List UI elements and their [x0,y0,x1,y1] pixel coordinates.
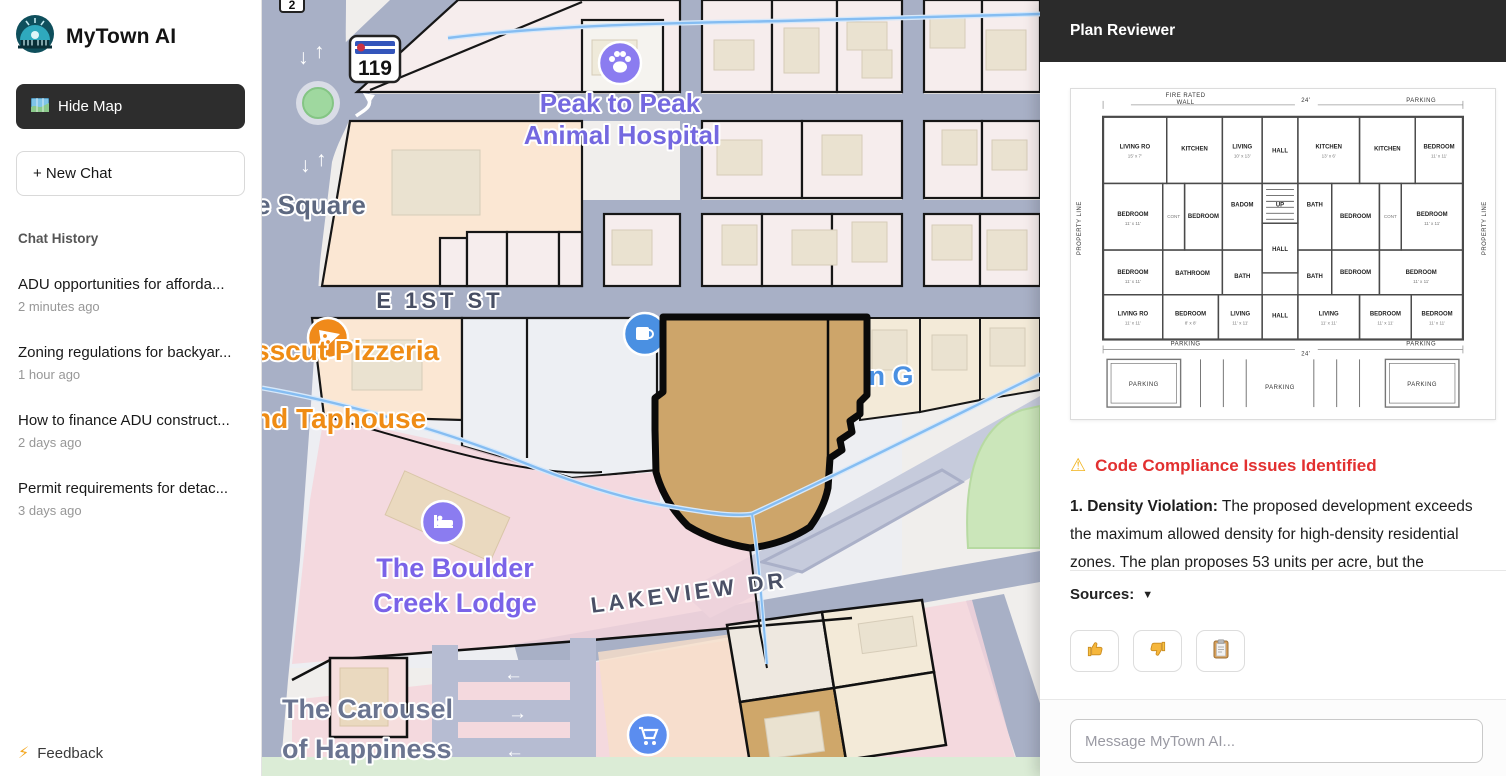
svg-text:15' x 7': 15' x 7' [1128,154,1142,159]
svg-text:10' x 13': 10' x 13' [1234,154,1251,159]
paw-icon[interactable] [599,42,641,84]
svg-text:↑: ↑ [316,148,327,171]
label-square: e Square [262,190,366,220]
svg-text:11' x 11': 11' x 11' [1413,279,1429,284]
label-carousel-line2: of Happiness [282,734,452,764]
issue-paragraph: 1. Density Violation: The proposed devel… [1070,493,1485,570]
chat-history-item[interactable]: ADU opportunities for afforda... 2 minut… [18,275,247,314]
svg-text:CONT: CONT [1384,214,1397,219]
svg-text:8' x 8': 8' x 8' [1185,321,1197,326]
chat-timestamp: 1 hour ago [18,367,247,382]
panel-body: FIRE RATED WALL 24' PARKING PARKING 24' … [1040,62,1506,699]
new-chat-button[interactable]: + New Chat [16,151,245,196]
chat-title: Zoning regulations for backyar... [18,343,247,362]
lightning-icon: ⚡ [18,743,29,763]
svg-text:↓: ↓ [298,46,309,69]
brand: MyTown AI [0,0,261,60]
mytown-logo-icon [14,13,56,60]
svg-text:11' x 11': 11' x 11' [1424,221,1440,226]
issues-heading-text: Code Compliance Issues Identified [1095,456,1377,476]
thumbs-down-button[interactable] [1133,630,1182,672]
svg-text:BEDROOM: BEDROOM [1188,214,1219,220]
chat-title: ADU opportunities for afforda... [18,275,247,294]
svg-text:2: 2 [289,0,296,12]
sidebar: MyTown AI Hide Map + New Chat Chat Histo… [0,0,262,776]
sources-label: Sources: [1070,586,1134,603]
warning-icon: ⚠ [1070,455,1086,476]
chat-history-heading: Chat History [18,231,261,246]
bed-icon[interactable] [422,501,464,543]
issues-heading: ⚠ Code Compliance Issues Identified [1070,455,1489,476]
thumbs-up-icon [1085,639,1105,664]
svg-text:LIVING RO: LIVING RO [1120,145,1151,151]
svg-text:119: 119 [358,57,392,80]
label-lodge-line2: Creek Lodge [373,588,537,618]
divider [1070,570,1506,571]
feedback-button[interactable]: ⚡ Feedback [18,743,103,763]
svg-text:BEDROOM: BEDROOM [1406,270,1437,276]
chat-timestamp: 3 days ago [18,503,247,518]
svg-text:PROPERTY LINE: PROPERTY LINE [1482,201,1488,255]
svg-text:24': 24' [1301,98,1310,104]
svg-text:CONT: CONT [1167,214,1180,219]
svg-text:KITCHEN: KITCHEN [1315,145,1341,151]
svg-text:LIVING: LIVING [1230,312,1250,318]
svg-text:11' x 11': 11' x 11' [1232,321,1248,326]
svg-text:←: ← [505,741,524,762]
svg-text:24': 24' [1301,351,1310,357]
chat-title: How to finance ADU construct... [18,411,247,430]
svg-text:BEDROOM: BEDROOM [1117,212,1148,218]
cart-icon[interactable] [628,715,668,755]
new-chat-label: + New Chat [33,165,112,182]
hide-map-button[interactable]: Hide Map [16,84,245,129]
brand-name: MyTown AI [66,25,176,49]
copy-button[interactable] [1196,630,1245,672]
sources-toggle[interactable]: Sources: ▼ [1070,586,1489,603]
composer [1040,699,1506,776]
chat-history-item[interactable]: Zoning regulations for backyar... 1 hour… [18,343,247,382]
svg-text:BATH: BATH [1307,202,1323,208]
clipboard-icon [1212,639,1230,664]
chat-title: Permit requirements for detac... [18,479,247,498]
svg-text:11' x 11': 11' x 11' [1125,221,1141,226]
svg-text:KITCHEN: KITCHEN [1181,147,1207,153]
svg-text:11' x 11': 11' x 11' [1125,321,1141,326]
svg-text:PROPERTY LINE: PROPERTY LINE [1077,201,1083,255]
app-window: MyTown AI Hide Map + New Chat Chat Histo… [0,0,1506,776]
message-input[interactable] [1070,719,1483,763]
floorplan-image[interactable]: FIRE RATED WALL 24' PARKING PARKING 24' … [1070,88,1496,420]
svg-text:BEDROOM: BEDROOM [1340,270,1371,276]
svg-text:↓: ↓ [300,154,311,177]
svg-text:KITCHEN: KITCHEN [1374,147,1400,153]
label-e-1st-st: E 1ST ST [376,288,503,313]
thumbs-up-button[interactable] [1070,630,1119,672]
svg-text:BATHROOM: BATHROOM [1175,271,1210,277]
svg-text:PARKING: PARKING [1406,98,1436,104]
label-peak-to-peak: Peak to Peak [540,88,701,118]
svg-text:BATH: BATH [1307,274,1323,280]
thumbs-down-icon [1148,639,1168,664]
message-actions [1070,630,1489,672]
svg-text:LIVING: LIVING [1232,145,1252,151]
svg-text:13' x 6': 13' x 6' [1322,154,1336,159]
roundabout [284,69,352,137]
svg-text:PARKING: PARKING [1265,385,1295,391]
label-animal-hospital: Animal Hospital [524,120,720,150]
chat-timestamp: 2 days ago [18,435,247,450]
svg-text:PARKING: PARKING [1171,341,1201,347]
route-shield-119: 119 [350,36,400,82]
label-carousel-line1: The Carousel [282,694,453,724]
svg-text:PARKING: PARKING [1129,382,1159,388]
route-shield-partial: 2 [280,0,304,12]
svg-text:PARKING: PARKING [1407,382,1437,388]
svg-text:BEDROOM: BEDROOM [1117,270,1148,276]
svg-text:11' x 11': 11' x 11' [1377,321,1393,326]
chevron-down-icon: ▼ [1142,589,1153,601]
svg-text:11' x 11': 11' x 11' [1321,321,1337,326]
hide-map-label: Hide Map [58,98,122,115]
svg-text:PARKING: PARKING [1406,341,1436,347]
svg-text:↑: ↑ [314,40,325,63]
svg-text:BEDROOM: BEDROOM [1175,312,1206,318]
panel-title: Plan Reviewer [1070,22,1175,40]
svg-text:LIVING RO: LIVING RO [1118,312,1149,318]
svg-text:WALL: WALL [1177,100,1195,106]
chat-timestamp: 2 minutes ago [18,299,247,314]
chat-history-item[interactable]: How to finance ADU construct... 2 days a… [18,411,247,450]
map-icon [31,98,49,116]
svg-text:FIRE RATED: FIRE RATED [1166,93,1206,99]
svg-text:BADOM: BADOM [1231,202,1254,208]
svg-text:→: → [508,703,527,724]
svg-text:BEDROOM: BEDROOM [1370,312,1401,318]
svg-text:LIVING: LIVING [1319,312,1339,318]
svg-text:BEDROOM: BEDROOM [1340,214,1371,220]
svg-text:HALL: HALL [1272,314,1288,320]
svg-text:BATH: BATH [1234,274,1250,280]
svg-text:BEDROOM: BEDROOM [1424,145,1455,151]
svg-text:HALL: HALL [1272,149,1288,155]
svg-text:11' x 11': 11' x 11' [1431,154,1447,159]
plan-reviewer-panel: Plan Reviewer FIRE RATED WALL [1040,0,1506,776]
map-canvas[interactable]: Mountain G [262,0,1040,776]
label-lodge-line1: The Boulder [376,553,534,583]
svg-text:11' x 11': 11' x 11' [1429,321,1445,326]
svg-text:11' x 11': 11' x 11' [1125,279,1141,284]
svg-text:BEDROOM: BEDROOM [1422,312,1453,318]
svg-text:←: ← [504,664,523,685]
label-pizzeria-line2: nd Taphouse [262,403,426,434]
label-pizzeria-line1: sscut Pizzeria [262,335,440,366]
issue-title: 1. Density Violation: [1070,498,1218,515]
svg-text:BEDROOM: BEDROOM [1417,212,1448,218]
svg-text:UP: UP [1276,202,1284,208]
chat-history-item[interactable]: Permit requirements for detac... 3 days … [18,479,247,518]
feedback-label: Feedback [37,745,103,762]
panel-header: Plan Reviewer [1040,0,1506,62]
svg-text:HALL: HALL [1272,247,1288,253]
